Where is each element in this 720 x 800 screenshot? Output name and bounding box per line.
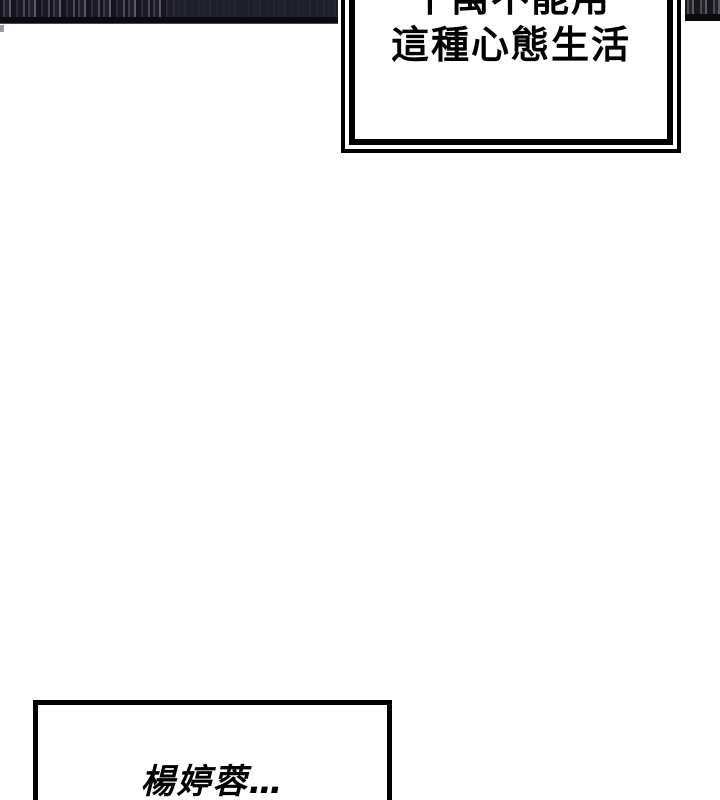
speech-bubble-bottom: 楊婷蓉… [33, 700, 392, 800]
speech-bubble-top: 千萬不能用 這種心態生活 [341, 0, 681, 153]
speech-bubble-top-text: 千萬不能用 這種心態生活 [355, 0, 667, 69]
dialogue-line: 千萬不能用 [355, 0, 667, 22]
panel-fragment-top-left [0, 0, 338, 24]
speech-bubble-bottom-text: 楊婷蓉… [38, 760, 387, 800]
panel-fragment-top-right [685, 0, 720, 21]
edge-artifact-speck [0, 25, 4, 32]
webtoon-page: 千萬不能用 這種心態生活 楊婷蓉… [0, 0, 720, 800]
dialogue-line: 這種心態生活 [355, 22, 667, 69]
speech-bubble-top-inner-border: 千萬不能用 這種心態生活 [349, 0, 673, 145]
